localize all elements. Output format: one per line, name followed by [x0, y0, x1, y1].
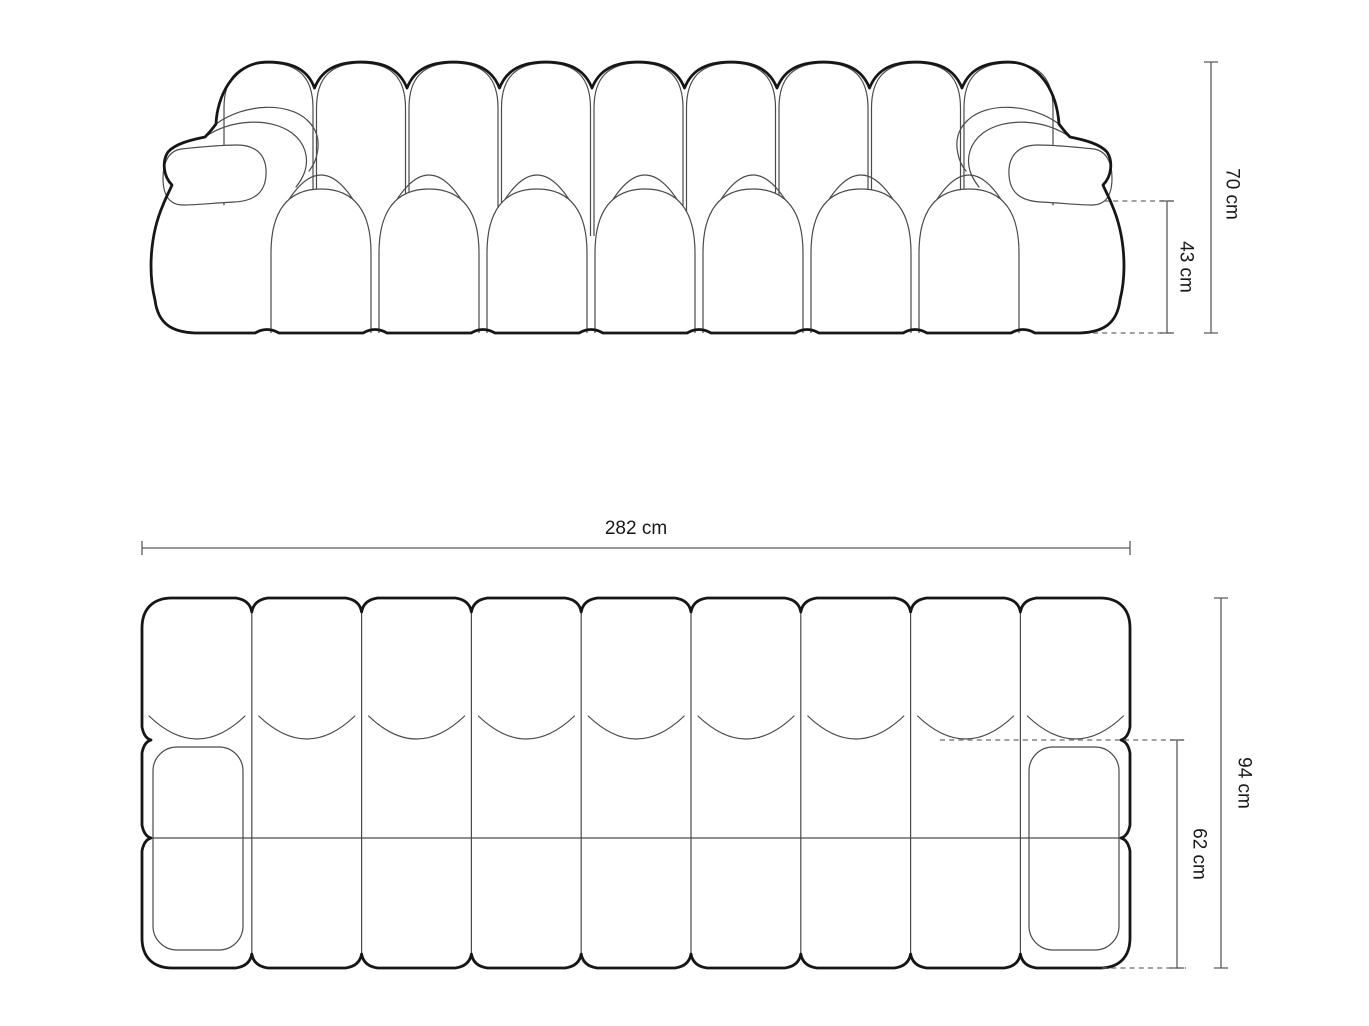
sofa-plan-view	[142, 598, 1130, 968]
dimension-plan-width: 282 cm	[142, 518, 1130, 555]
plan-seat-depth-extension-lines	[940, 740, 1186, 968]
dimension-plan-total-depth: 94 cm	[1214, 598, 1254, 968]
plan-width-label: 282 cm	[605, 518, 667, 539]
front-total-height-label: 70 cm	[1221, 168, 1242, 220]
sofa-dimensions-diagram: 43 cm 70 cm 282 cm 62 cm 94 cm	[0, 0, 1369, 1026]
plan-outer-boundary	[142, 598, 1130, 968]
front-seat-height-label: 43 cm	[1175, 241, 1196, 293]
plan-total-depth-label: 94 cm	[1233, 757, 1254, 809]
plan-seat-depth-label: 62 cm	[1188, 828, 1209, 880]
dimension-plan-seat-depth: 62 cm	[1170, 740, 1209, 968]
plan-backrest-boundary	[149, 716, 1123, 739]
dimension-front-total-height: 70 cm	[1204, 62, 1242, 333]
plan-right-armrest-outline	[1029, 747, 1119, 950]
plan-column-dividers	[252, 612, 1021, 954]
sofa-front-view	[151, 62, 1124, 334]
plan-left-armrest-outline	[153, 747, 243, 950]
dimension-front-seat-height: 43 cm	[1160, 201, 1196, 333]
